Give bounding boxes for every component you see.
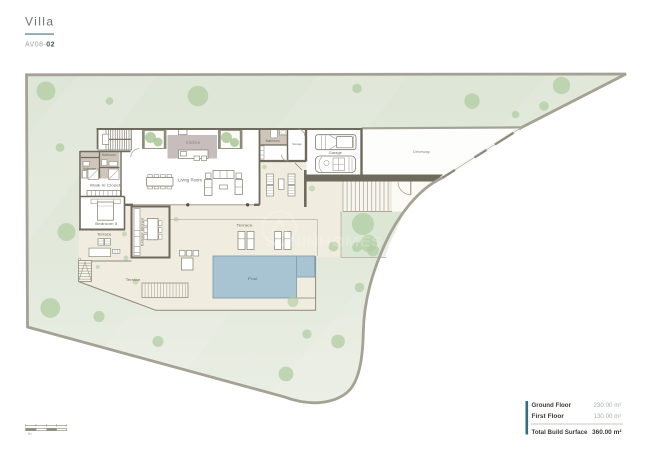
svg-text:Kitchen: Kitchen	[186, 140, 201, 145]
svg-text:Total Build Surface: Total Build Surface	[532, 429, 588, 436]
svg-text:360.00 m²: 360.00 m²	[592, 429, 622, 436]
svg-text:Storage: Storage	[292, 142, 302, 146]
svg-text:Exterior Kitchen: Exterior Kitchen	[141, 218, 145, 246]
svg-text:Bathroom: Bathroom	[266, 139, 280, 143]
svg-text:AV08-02: AV08-02	[25, 42, 55, 49]
svg-text:Pool: Pool	[248, 277, 258, 281]
svg-text:5m: 5m	[28, 432, 33, 436]
svg-text:130.00 m²: 130.00 m²	[594, 413, 622, 420]
svg-text:Garage: Garage	[329, 151, 342, 155]
svg-text:Bathroom: Bathroom	[102, 153, 117, 157]
svg-text:Walk-in Closet: Walk-in Closet	[90, 184, 122, 188]
svg-text:Bedroom 5: Bedroom 5	[95, 222, 117, 226]
svg-text:Ground Floor: Ground Floor	[532, 402, 572, 409]
svg-text:SUNINHOMES: SUNINHOMES	[265, 234, 383, 251]
svg-text:Driveway: Driveway	[413, 150, 430, 154]
svg-text:First Floor: First Floor	[532, 413, 565, 420]
svg-text:230.00 m²: 230.00 m²	[594, 402, 622, 409]
svg-text:Terrace: Terrace	[126, 278, 141, 282]
svg-text:Villa: Villa	[25, 15, 53, 29]
svg-text:Terrace: Terrace	[236, 223, 252, 227]
svg-text:Terrace: Terrace	[97, 232, 112, 236]
svg-text:Bathroom: Bathroom	[83, 167, 96, 171]
svg-text:Living Room: Living Room	[178, 178, 203, 183]
